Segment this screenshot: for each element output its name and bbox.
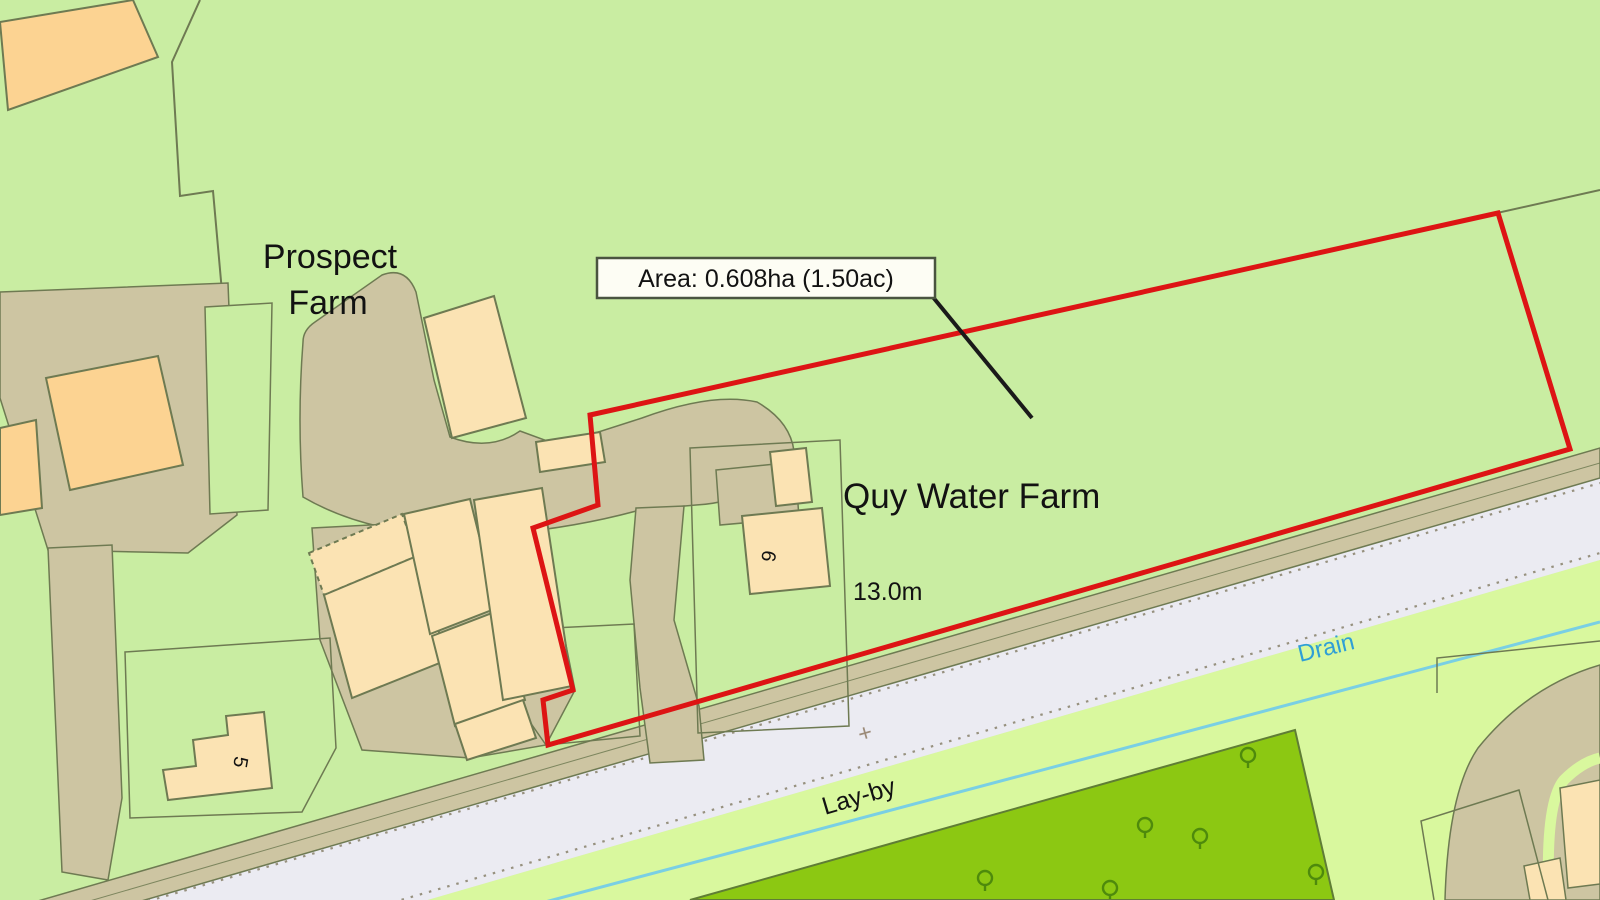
site-plan-map: Area: 0.608ha (1.50ac) Prospect Farm Quy… (0, 0, 1600, 900)
building-southeast-1 (1560, 780, 1600, 888)
dimension-label: 13.0m (853, 578, 922, 606)
map-canvas: Area: 0.608ha (1.50ac) Prospect Farm Quy… (0, 0, 1600, 900)
building-plot6-outbuilding (770, 448, 812, 506)
building-northwest-barn-2 (46, 356, 183, 490)
building-plot6-house (742, 508, 830, 594)
area-callout-text: Area: 0.608ha (1.50ac) (638, 265, 894, 293)
building-northwest-barn-3 (0, 420, 42, 515)
green-paddock-island (205, 303, 272, 514)
quy-water-farm-label: Quy Water Farm (843, 477, 1100, 516)
prospect-farm-label-line1: Prospect (263, 238, 398, 276)
building-southeast-2 (1524, 858, 1566, 900)
prospect-farm-label-line2: Farm (288, 284, 367, 322)
